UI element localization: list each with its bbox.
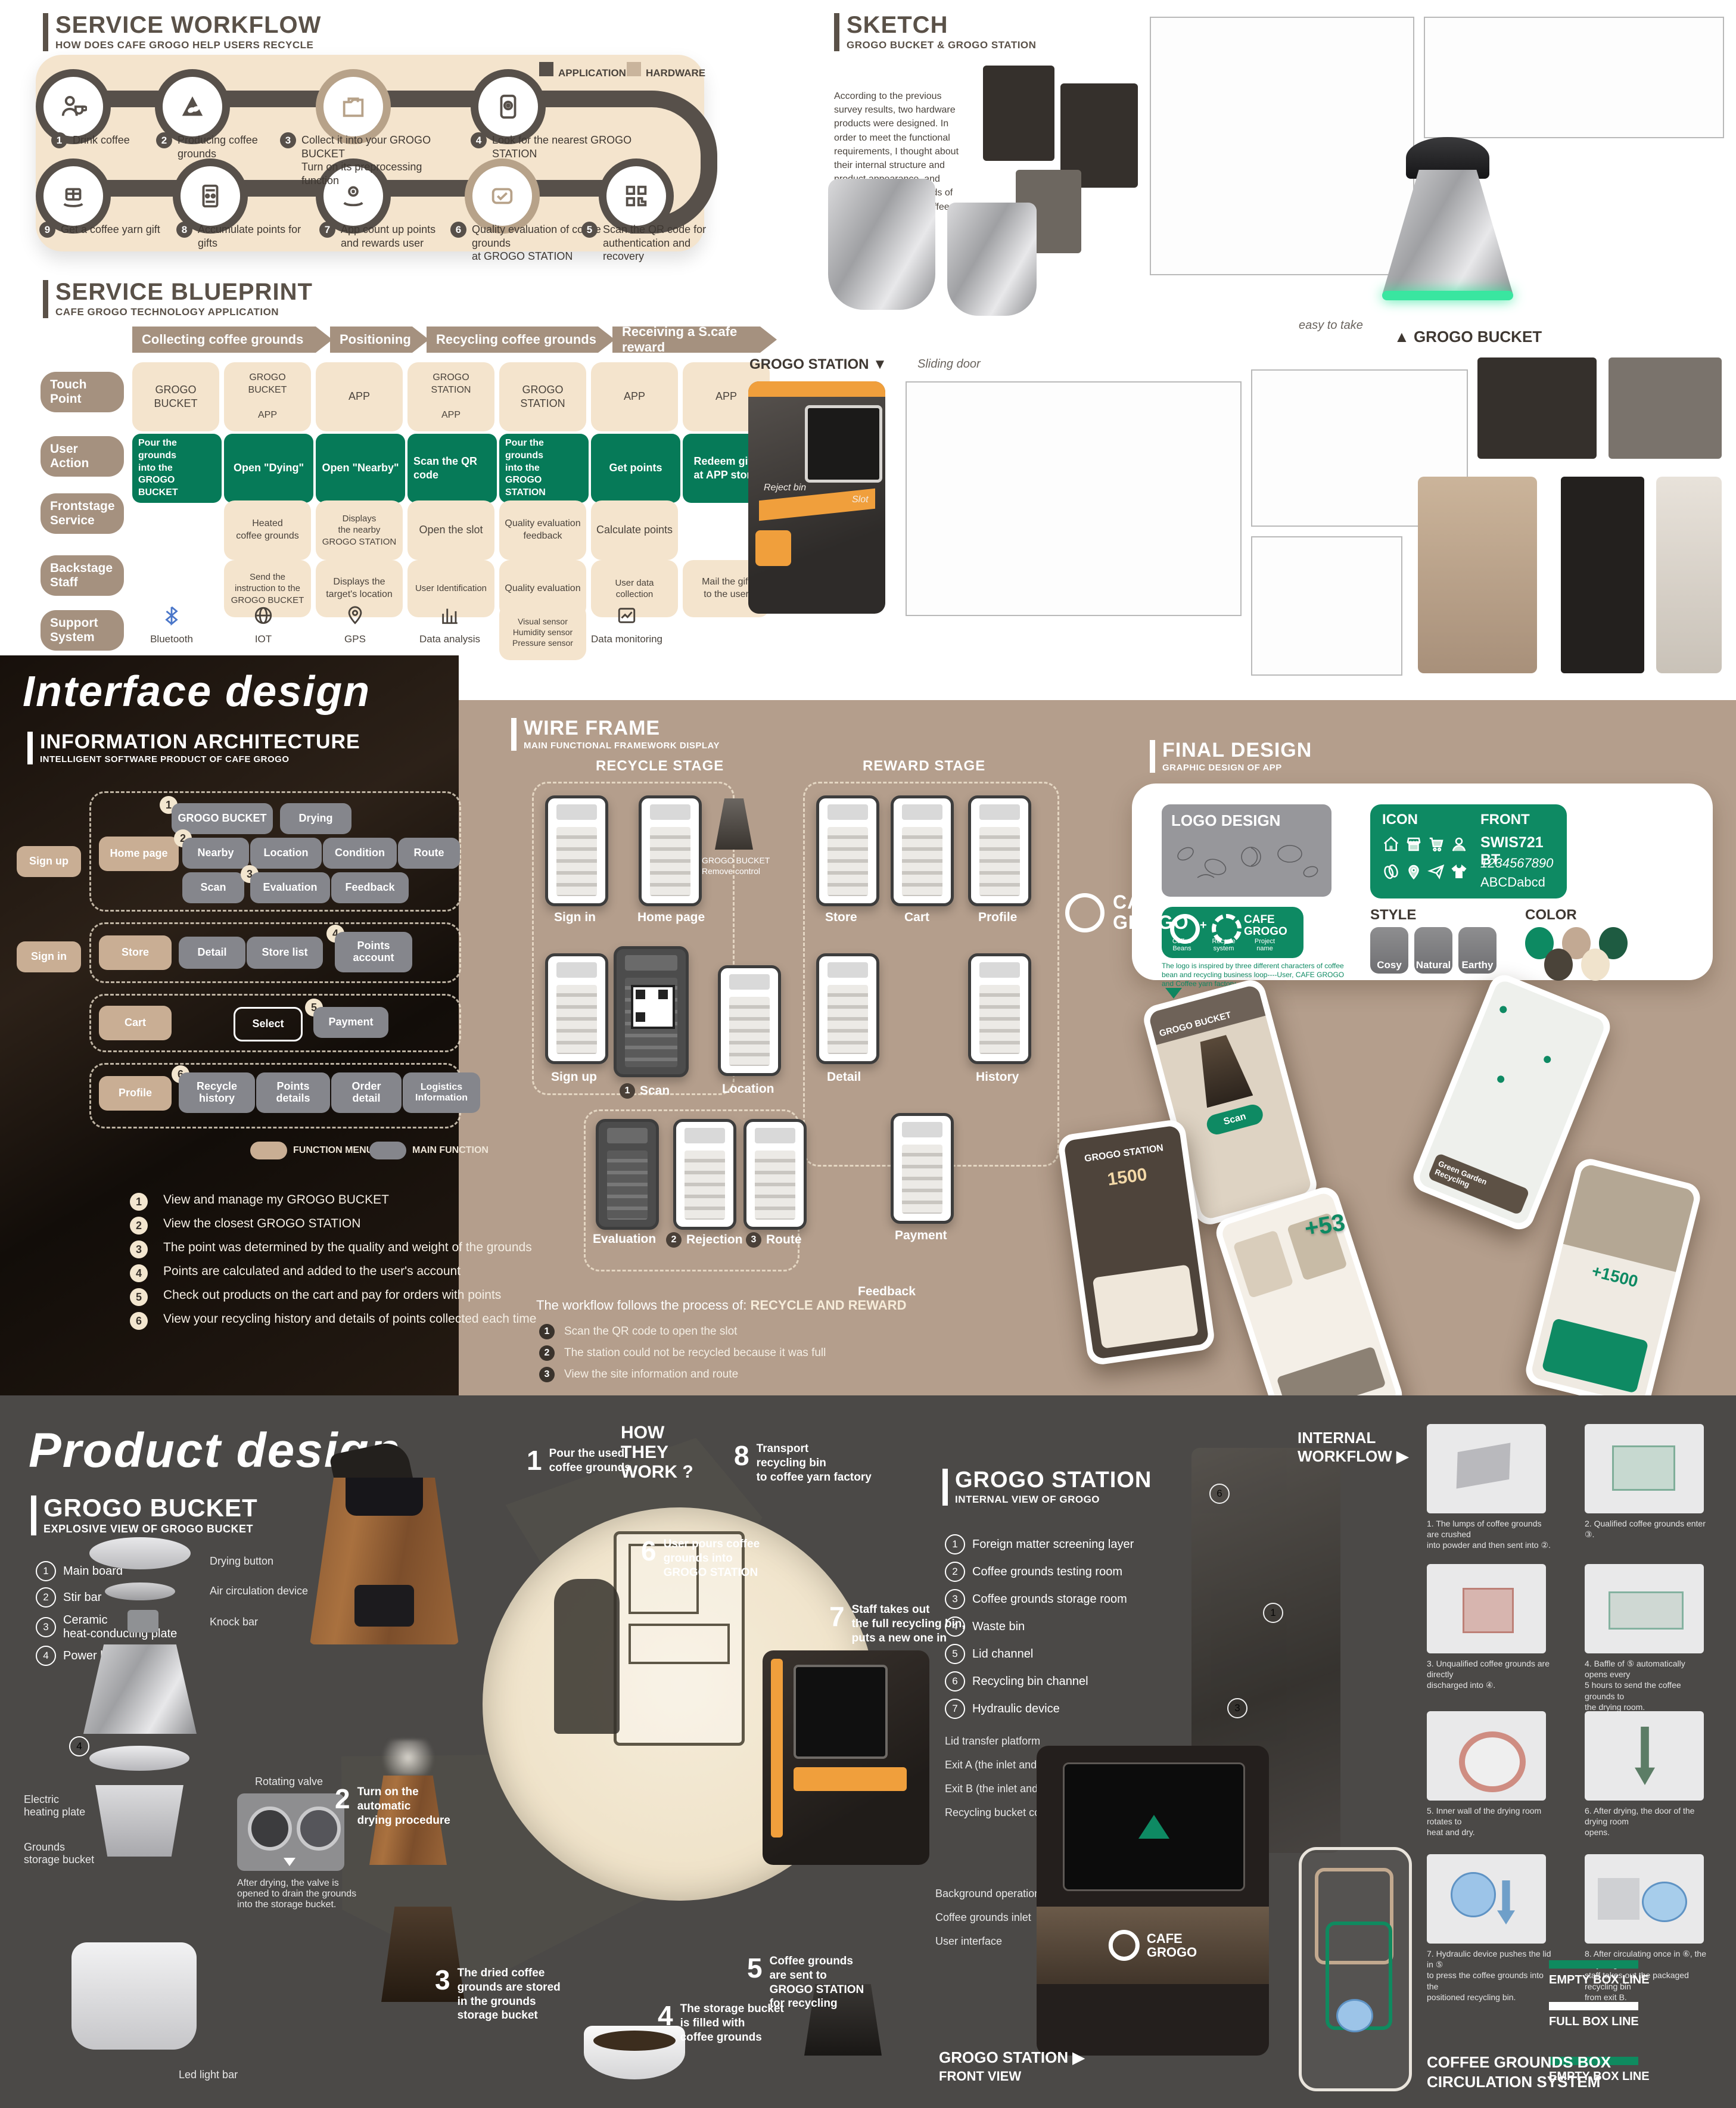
- support-label: Data monitoring: [591, 633, 662, 645]
- phase-positioning: Positioning: [330, 327, 429, 353]
- support-label: IOT: [255, 633, 272, 645]
- location-label: Location: [722, 1082, 774, 1096]
- workflow-shape: [1598, 1878, 1639, 1920]
- node-route[interactable]: Route: [398, 838, 460, 869]
- icon-grid: [1382, 835, 1471, 889]
- wireframe-phone-profile[interactable]: [968, 795, 1031, 906]
- recycle-stage-label: RECYCLE STAGE: [596, 758, 724, 775]
- line-chart-icon: [617, 605, 637, 629]
- note-number: 4: [130, 1264, 148, 1282]
- function-menu-swatch: [250, 1142, 287, 1159]
- slot-label: Slot: [852, 495, 869, 505]
- screen-logo-triangle: [1138, 1815, 1169, 1839]
- step-number: 4: [658, 2002, 673, 2044]
- node-feedback[interactable]: Feedback: [331, 872, 409, 903]
- support-data-monitoring: Data monitoring: [591, 605, 662, 645]
- step-number: 7: [829, 1603, 845, 1645]
- step-number: 6: [641, 1537, 657, 1580]
- circulation-diagram: [1299, 1847, 1412, 2091]
- wireframe-phone-route[interactable]: [743, 1119, 807, 1230]
- step-text: Coffee grounds are sent to GROGO STATION…: [770, 1954, 864, 2011]
- node-nearby[interactable]: Nearby: [182, 838, 249, 869]
- note-number: 1: [539, 1324, 555, 1339]
- internal-workflow-label: INTERNAL WORKFLOW ▶: [1298, 1429, 1408, 1466]
- ia-note: 4Points are calculated and added to the …: [130, 1264, 461, 1282]
- part-4-marker: 4: [69, 1736, 89, 1756]
- step-number: 9: [39, 222, 55, 238]
- logo-caption-project: Project name: [1245, 938, 1284, 952]
- step-text: Transport recycling bin to coffee yarn f…: [757, 1442, 872, 1484]
- logo-sketch-doodles: [1162, 830, 1331, 890]
- callout-heating-plate: Electric heating plate: [24, 1793, 85, 1818]
- support-gps: GPS: [325, 605, 385, 645]
- wireframe-note: 2The station could not be recycled becau…: [539, 1345, 826, 1361]
- workflow-shape: [1497, 1880, 1515, 1924]
- node-points-account[interactable]: Points account: [335, 932, 412, 972]
- workflow-shape: [1457, 1443, 1511, 1489]
- station-item: 3Coffee grounds storage room: [945, 1589, 1127, 1609]
- service-blueprint-header: SERVICE BLUEPRINT CAFE GROGO TECHNOLOGY …: [43, 280, 313, 318]
- sketch-title: SKETCH: [847, 13, 1036, 37]
- style-thumbs: Cosy Natural Earthy: [1370, 927, 1497, 974]
- wireframe-note: 3View the site information and route: [539, 1367, 738, 1382]
- frontstage-cell: Displays the nearby GROGO STATION: [316, 500, 403, 560]
- workflow-image-3: [1427, 1564, 1546, 1653]
- grogo-bucket-section-header: GROGO BUCKET EXPLOSIVE VIEW OF GROGO BUC…: [31, 1496, 258, 1535]
- station-title: GROGO STATION: [955, 1469, 1152, 1491]
- wireframe-title: WIRE FRAME: [524, 718, 720, 738]
- final-design-title: FINAL DESIGN: [1162, 740, 1312, 760]
- bucket-photo: [310, 1478, 459, 1644]
- step-number: 7: [319, 222, 335, 238]
- application-swatch: [539, 62, 553, 76]
- service-workflow-title: SERVICE WORKFLOW: [55, 13, 321, 37]
- logo-project-name: CAFE GROGO: [1244, 914, 1287, 938]
- node-location[interactable]: Location: [250, 838, 322, 869]
- station-label-user-interface: User interface: [935, 1935, 1002, 1948]
- node-scan[interactable]: Scan: [182, 872, 244, 903]
- logo-design-label: LOGO DESIGN: [1162, 804, 1331, 830]
- interface-design-heading: Interface design: [23, 667, 371, 716]
- machine-logo-icon: [1109, 1930, 1140, 1961]
- callout-drying-button: Drying button: [210, 1555, 273, 1568]
- support-label: Bluetooth: [150, 633, 193, 645]
- render-marker: 3: [1227, 1698, 1247, 1718]
- header-bar: [43, 280, 48, 318]
- wireframe-note: 1Scan the QR code to open the slot: [539, 1324, 737, 1339]
- workflow-shape: [1463, 1588, 1514, 1633]
- render-marker: 6: [1209, 1484, 1230, 1504]
- bucket-card-image: [1190, 1032, 1253, 1108]
- node-home-page[interactable]: Home page: [99, 837, 179, 871]
- sketch-placeholder: [1251, 536, 1402, 676]
- note-number: 3: [539, 1367, 555, 1382]
- rejection-step-text: Rejection: [686, 1233, 743, 1247]
- grogo-station-section-header: GROGO STATION INTERNAL VIEW OF GROGO: [942, 1469, 1152, 1506]
- station-item: 6Recycling bin channel: [945, 1671, 1088, 1692]
- tshirt-icon: [1450, 863, 1471, 889]
- store-icon: [1405, 835, 1426, 862]
- step-label: Scan the QR code for authentication and …: [603, 222, 707, 263]
- note-text: View the site information and route: [564, 1368, 738, 1381]
- wireframe-phone-evaluation[interactable]: [596, 1119, 659, 1230]
- step-number: 6: [450, 222, 466, 238]
- phase-recycling: Recycling coffee grounds: [427, 327, 615, 353]
- workflow-shape: [1642, 1882, 1687, 1922]
- cart-label: Cart: [904, 910, 929, 925]
- header-bar: [511, 718, 517, 751]
- workflow-step: 4 Look for the nearest GROGO STATION: [471, 132, 667, 160]
- step-number: 2: [156, 132, 172, 148]
- wireframe-header: WIRE FRAME MAIN FUNCTIONAL FRAMEWORK DIS…: [511, 718, 720, 751]
- sign-in-label: Sign in: [554, 910, 596, 925]
- home-icon: [1382, 835, 1404, 862]
- workflow-image-6: [1585, 1711, 1704, 1801]
- part-label: Stir bar: [63, 1591, 101, 1605]
- frontstage-cell: Open the slot: [407, 500, 494, 560]
- node-cart[interactable]: Cart: [99, 1006, 172, 1040]
- support-label: Data analysis: [419, 633, 480, 645]
- profile-card: [1542, 1318, 1649, 1394]
- exploded-lid: [89, 1537, 191, 1569]
- final-design-subtitle: GRAPHIC DESIGN OF APP: [1162, 763, 1312, 773]
- store-label: Store: [825, 910, 857, 925]
- station-screen-card: [1093, 1264, 1199, 1349]
- user-action-cell: Scan the QR code: [407, 434, 497, 503]
- service-blueprint-title: SERVICE BLUEPRINT: [55, 280, 313, 304]
- wireframe-phone-home[interactable]: [639, 795, 702, 906]
- service-blueprint-subtitle: CAFE GROGO TECHNOLOGY APPLICATION: [55, 306, 313, 318]
- part-number: 3: [36, 1617, 56, 1637]
- wireframe-phone-payment[interactable]: [891, 1113, 954, 1224]
- brand-name: CAFE GROGO: [1113, 893, 1189, 932]
- node-condition[interactable]: Condition: [323, 838, 397, 869]
- wireframe-phone-cart[interactable]: [891, 795, 954, 906]
- note-number: 3: [130, 1240, 148, 1258]
- node-evaluation[interactable]: Evaluation: [250, 872, 330, 903]
- item-label: Lid channel: [972, 1647, 1033, 1661]
- node-detail[interactable]: Detail: [179, 937, 245, 969]
- route-label: 3 Route: [746, 1232, 802, 1248]
- how-they-work-title: HOW THEY WORK ?: [621, 1423, 693, 1482]
- scan-step-number: 1: [620, 1083, 635, 1099]
- bucket-body: [1382, 170, 1513, 295]
- station-slot: [794, 1767, 907, 1791]
- callout-led-bar: Led light bar: [179, 2069, 238, 2081]
- node-sign-in[interactable]: Sign in: [17, 941, 81, 972]
- item-label: Hydraulic device: [972, 1702, 1060, 1716]
- wireframe-phone-scan[interactable]: [614, 946, 689, 1077]
- note-text: Scan the QR code to open the slot: [564, 1325, 737, 1338]
- row-touch-point: Touch Point: [41, 372, 124, 412]
- node-recycle-history[interactable]: Recycle history: [179, 1072, 255, 1113]
- scan-step-text: Scan: [640, 1084, 670, 1098]
- user-action-cell: Open "Dying": [224, 434, 313, 503]
- full-line-label: FULL BOX LINE: [1549, 2015, 1639, 2029]
- step-number: 1: [527, 1447, 542, 1475]
- step-label: Accumulate points for gifts: [198, 222, 313, 250]
- palette-row-2: [1544, 949, 1610, 981]
- application-label: APPLICATION: [558, 67, 626, 79]
- station-subtitle: INTERNAL VIEW OF GROGO: [955, 1494, 1152, 1506]
- user-action-cell: Pour the grounds into the GROGO STATION: [499, 434, 589, 503]
- bucket-render-side: [947, 203, 1037, 316]
- globe-icon: [253, 605, 273, 629]
- route-step-text: Route: [766, 1233, 802, 1247]
- part-number: 1: [36, 1561, 56, 1581]
- main-function-label: MAIN FUNCTION: [412, 1145, 489, 1156]
- user-icon: [1450, 835, 1471, 862]
- wireframe-phone-rejection[interactable]: [673, 1119, 736, 1230]
- item-label: Waste bin: [972, 1620, 1025, 1634]
- valve-note: After drying, the valve is opened to dra…: [237, 1878, 356, 1910]
- step-label: Drink coffee: [73, 132, 130, 147]
- map-pin: [1496, 1075, 1505, 1084]
- node-logistics[interactable]: Logistics Information: [403, 1072, 480, 1113]
- exploded-ring: [105, 1582, 175, 1600]
- bucket-remove-note: GROGO BUCKET Remove control: [702, 856, 770, 876]
- note-text: The station could not be recycled becaus…: [564, 1347, 826, 1360]
- sketch-placeholder: [1424, 17, 1724, 138]
- style-cosy: Cosy: [1370, 927, 1408, 974]
- support-sensors: Visual sensor Humidity sensor Pressure s…: [499, 604, 586, 660]
- profile-label: Profile: [978, 910, 1017, 925]
- item-label: Coffee grounds testing room: [972, 1565, 1122, 1579]
- bucket-photo-panel: [354, 1585, 414, 1627]
- ia-note: 1View and manage my GROGO BUCKET: [130, 1193, 389, 1211]
- style-natural: Natural: [1414, 927, 1452, 974]
- reward-stage-label: REWARD STAGE: [863, 758, 985, 775]
- photo-thumbnail: [983, 66, 1054, 161]
- circulation-title: COFFEE GROUNDS BOX CIRCULATION SYSTEM: [1427, 2053, 1611, 2091]
- wireframe-phone-sign-in[interactable]: [545, 795, 608, 906]
- rejection-label: 2 Rejection: [666, 1232, 743, 1248]
- workflow-shape: [1609, 1591, 1684, 1630]
- bucket-render-side: [828, 179, 935, 310]
- how-step-6: 6User pours coffee grounds into GROGO ST…: [641, 1537, 760, 1580]
- note-text: Check out products on the cart and pay f…: [163, 1288, 501, 1306]
- rejection-step-number: 2: [666, 1232, 682, 1248]
- logo-caption-recycle: Recycle system: [1207, 938, 1240, 952]
- item-number: 5: [945, 1644, 965, 1664]
- feedback-label: Feedback: [858, 1285, 916, 1299]
- logo-plus: +: [1200, 919, 1207, 932]
- product-card: [1233, 1230, 1294, 1298]
- bucket-part: 2Stir bar: [36, 1587, 101, 1608]
- function-menu-label: FUNCTION MENU: [293, 1145, 373, 1156]
- workflow-image-8: [1585, 1854, 1704, 1944]
- front-view-screen: [1063, 1762, 1245, 1891]
- ia-note: 3The point was determined by the quality…: [130, 1240, 532, 1258]
- station-photo-render: [763, 1650, 929, 1865]
- step-label: Collect it into your GROGO BUCKET Turn o…: [301, 132, 459, 187]
- map-pin: [1542, 1055, 1552, 1064]
- item-label: Recycling bin channel: [972, 1675, 1088, 1689]
- node-select[interactable]: Select: [234, 1007, 303, 1041]
- node-order-detail[interactable]: Order detail: [331, 1072, 402, 1113]
- empty-line-label: EMPTY BOX LINE: [1549, 1973, 1650, 1987]
- valve-disc: [248, 1807, 292, 1851]
- item-label: Coffee grounds storage room: [972, 1593, 1127, 1606]
- wireframe-phone-sign-up[interactable]: [545, 953, 608, 1064]
- bucket-photo-lid: [346, 1478, 423, 1516]
- workflow-caption-2: 2. Qualified coffee grounds enter ③.: [1585, 1518, 1710, 1540]
- note-number: 1: [130, 1193, 148, 1211]
- header-bar: [834, 13, 839, 51]
- how-step-5: 5Coffee grounds are sent to GROGO STATIO…: [747, 1954, 864, 2011]
- cafe-grogo-brand: CAFE GROGO: [1065, 893, 1189, 932]
- send-icon: [1427, 863, 1449, 889]
- ia-subtitle: INTELLIGENT SOFTWARE PRODUCT OF CAFE GRO…: [40, 754, 360, 764]
- photo-thumbnail: [1609, 357, 1722, 459]
- valve-disc: [297, 1807, 341, 1851]
- touch-point-cell: GROGO STATION APP: [407, 362, 494, 431]
- node-payment[interactable]: Payment: [313, 1007, 388, 1038]
- ia-note: 6View your recycling history and details…: [130, 1312, 536, 1330]
- workflow-image-2: [1585, 1424, 1704, 1513]
- step-number: 1: [51, 132, 67, 148]
- workflow-caption-4: 4. Baffle of ⑤ automatically opens every…: [1585, 1658, 1710, 1712]
- node-points-details[interactable]: Points details: [256, 1072, 330, 1113]
- part-label: Ceramic heat-conducting plate: [63, 1613, 177, 1641]
- note-text: The point was determined by the quality …: [163, 1240, 532, 1258]
- station-item: 4Waste bin: [945, 1616, 1025, 1637]
- station-reject-door: [755, 530, 791, 566]
- location-pin-icon: [1405, 863, 1426, 889]
- touch-point-cell: GROGO STATION: [499, 362, 586, 431]
- front-view-sub: FRONT VIEW: [939, 2069, 1021, 2084]
- header-bar: [31, 1496, 36, 1535]
- valve-arrow: [284, 1858, 295, 1866]
- part-number: 4: [36, 1646, 56, 1666]
- header-bar: [27, 732, 33, 764]
- row-user-action: User Action: [41, 436, 124, 477]
- node-drying[interactable]: Drying: [280, 803, 351, 834]
- workflow-step: 9 Get a coffee yarn gift: [39, 222, 170, 238]
- design-board: SERVICE WORKFLOW HOW DOES CAFE GROGO HEL…: [0, 0, 1736, 2108]
- bucket-subtitle: EXPLOSIVE VIEW OF GROGO BUCKET: [43, 1523, 258, 1535]
- item-number: 4: [945, 1616, 965, 1637]
- front-digits: 1234567890: [1480, 856, 1553, 871]
- item-label: Foreign matter screening layer: [972, 1538, 1134, 1552]
- circulation-bin: [1336, 1999, 1373, 2032]
- workflow-caption-5: 5. Inner wall of the drying room rotates…: [1427, 1805, 1552, 1838]
- station-item: 1Foreign matter screening layer: [945, 1534, 1134, 1554]
- frontstage-cell: Heated coffee grounds: [224, 500, 311, 560]
- step-text: Turn on the automatic drying procedure: [357, 1785, 450, 1827]
- touch-point-cell: APP: [316, 362, 403, 431]
- legend-empty-box-top: EMPTY BOX LINE: [1549, 1960, 1650, 1987]
- process-line: The workflow follows the process of: REC…: [536, 1298, 906, 1313]
- process-bold: RECYCLE AND REWARD: [750, 1298, 906, 1313]
- palette-cream: [1581, 949, 1610, 981]
- node-grogo-bucket[interactable]: GROGO BUCKET: [172, 803, 273, 834]
- node-sign-up[interactable]: Sign up: [17, 846, 81, 877]
- scan-label: 1 Scan: [620, 1083, 670, 1099]
- node-profile[interactable]: Profile: [99, 1076, 172, 1111]
- logo-design-panel: LOGO DESIGN: [1162, 804, 1331, 897]
- header-bar: [43, 13, 48, 51]
- wireframe-phone-history[interactable]: [968, 953, 1031, 1064]
- step-number: 2: [335, 1785, 350, 1827]
- note-text: Points are calculated and added to the u…: [163, 1264, 461, 1282]
- grogo-bucket-render: [1370, 137, 1525, 316]
- evaluation-label: Evaluation: [593, 1232, 656, 1246]
- workflow-image-4: [1585, 1564, 1704, 1653]
- row-support: Support System: [41, 610, 124, 651]
- station-window: [805, 405, 882, 483]
- logo-pointer-triangle: [1165, 988, 1182, 999]
- logo-caption-bean: Coffee Beans: [1165, 938, 1199, 952]
- style-label: STYLE: [1370, 907, 1416, 924]
- detail-label: Detail: [827, 1070, 861, 1084]
- full-line-swatch: [1549, 2002, 1638, 2010]
- item-number: 2: [945, 1562, 965, 1582]
- exploded-base: [71, 1942, 197, 2050]
- station-label-lid-platform: Lid transfer platform: [945, 1735, 1040, 1748]
- legend-hardware: HARDWARE: [627, 62, 705, 79]
- note-number: 5: [130, 1288, 148, 1306]
- station-label-grounds-inlet: Coffee grounds inlet: [935, 1911, 1031, 1924]
- final-design-header: FINAL DESIGN GRAPHIC DESIGN OF APP: [1150, 740, 1312, 773]
- touch-point-cell: APP: [591, 362, 678, 431]
- frontstage-cell: Calculate points: [591, 500, 678, 560]
- step-number: 4: [471, 132, 487, 148]
- touch-point-cell: GROGO BUCKET APP: [224, 362, 311, 431]
- person-silhouette: [554, 1579, 620, 1734]
- valve-label: Rotating valve: [255, 1776, 323, 1788]
- ia-note: 2View the closest GROGO STATION: [130, 1217, 360, 1235]
- step-label: Look for the nearest GROGO STATION: [492, 132, 667, 160]
- node-store-list[interactable]: Store list: [247, 937, 323, 969]
- scan-button[interactable]: Scan: [1205, 1102, 1265, 1137]
- workflow-image-7: [1427, 1854, 1546, 1944]
- icon-front-panel: ICON FRONT SWIS721 BT 1234567890 ABCDabc…: [1370, 804, 1567, 898]
- hardware-swatch: [627, 62, 641, 76]
- station-orange-stripe: [771, 1659, 783, 1837]
- step-number: 5: [747, 1954, 763, 2011]
- service-workflow-subtitle: HOW DOES CAFE GROGO HELP USERS RECYCLE: [55, 39, 321, 51]
- style-earthy: Earthy: [1458, 927, 1497, 974]
- icon-label: ICON: [1382, 812, 1418, 828]
- step-number: 3: [280, 132, 296, 148]
- phase-reward: Receiving a S.cafe reward: [612, 327, 777, 353]
- service-workflow-header: SERVICE WORKFLOW HOW DOES CAFE GROGO HEL…: [43, 13, 321, 51]
- steam-render: [375, 1740, 441, 1776]
- ia-title: INFORMATION ARCHITECTURE: [40, 732, 360, 752]
- workflow-step: 1 Drink coffee: [51, 132, 141, 148]
- qr-placeholder: [631, 985, 675, 1029]
- front-view-title: GROGO STATION ▶: [939, 2048, 1084, 2067]
- workflow-step: 2 Producing coffee grounds: [156, 132, 287, 160]
- wireframe-phone-store[interactable]: [816, 795, 879, 906]
- valve-image-box: [237, 1793, 344, 1871]
- callout-air-circulation: Air circulation device: [210, 1585, 308, 1597]
- step-text: The dried coffee grounds are stored in t…: [458, 1966, 561, 2023]
- workflow-shape: [1612, 1445, 1675, 1491]
- support-data-analysis: Data analysis: [417, 605, 483, 645]
- wireframe-phone-detail[interactable]: [816, 953, 879, 1064]
- workflow-caption-3: 3. Unqualified coffee grounds are direct…: [1427, 1658, 1552, 1691]
- node-store[interactable]: Store: [99, 935, 172, 970]
- workflow-caption-1: 1. The lumps of coffee grounds are crush…: [1427, 1518, 1552, 1551]
- workflow-image-5: [1427, 1711, 1546, 1801]
- wireframe-phone-location[interactable]: [718, 965, 781, 1076]
- station-render-dark: [1561, 477, 1644, 673]
- grogo-bucket-label: ▲ GROGO BUCKET: [1394, 328, 1542, 346]
- map-pin: [1498, 1005, 1508, 1015]
- front-label: FRONT: [1480, 812, 1530, 828]
